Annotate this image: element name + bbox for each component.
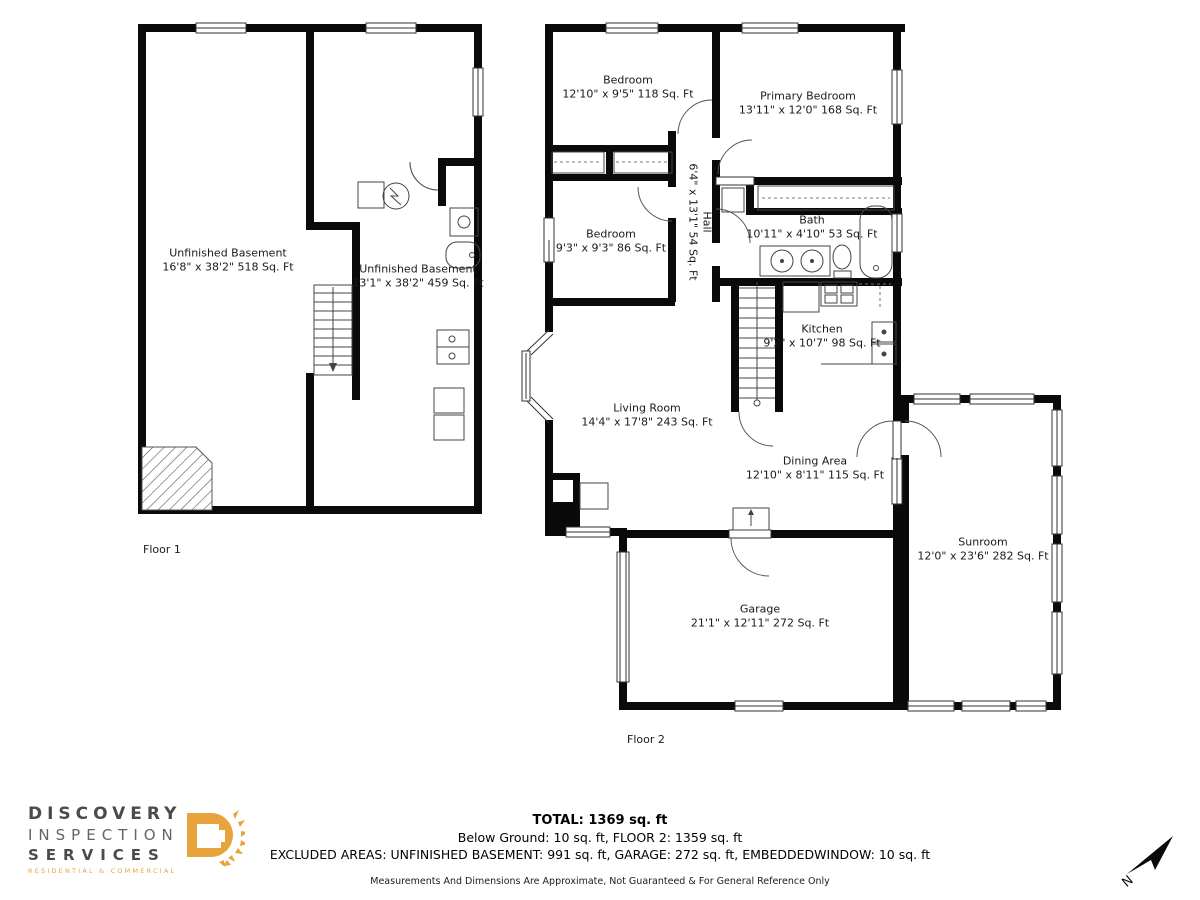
floor1-label: Floor 1 [143,543,181,556]
room-dims: 12'0" x 23'6" 282 Sq. Ft [917,550,1048,564]
room-dims: 14'4" x 17'8" 243 Sq. Ft [581,416,712,430]
room-dims: 13'1" x 38'2" 459 Sq. Ft [352,277,483,291]
room-label-basement-right: Unfinished Basement 13'1" x 38'2" 459 Sq… [352,263,483,292]
bay-window [527,330,553,423]
room-label-primary-bedroom: Primary Bedroom 13'11" x 12'0" 168 Sq. F… [739,90,877,119]
room-dims: 13'11" x 12'0" 168 Sq. Ft [739,104,877,118]
room-label-kitchen: Kitchen 9'2" x 10'7" 98 Sq. Ft [763,323,880,352]
room-label-basement-left: Unfinished Basement 16'8" x 38'2" 518 Sq… [162,247,293,276]
room-name: Unfinished Basement [352,263,483,277]
floorplan-drawing [0,0,1200,900]
fireplace-inner [553,480,573,502]
room-label-garage: Garage 21'1" x 12'11" 272 Sq. Ft [691,603,829,632]
room-name: Sunroom [917,536,1048,550]
room-label-bedroom-top: Bedroom 12'10" x 9'5" 118 Sq. Ft [562,74,693,103]
room-dims: 9'2" x 10'7" 98 Sq. Ft [763,337,880,351]
room-dims: 9'3" x 9'3" 86 Sq. Ft [556,242,666,256]
room-name: Unfinished Basement [162,247,293,261]
room-label-living-room: Living Room 14'4" x 17'8" 243 Sq. Ft [581,402,712,431]
compass-label: N [1119,873,1136,891]
room-name: Bedroom [556,228,666,242]
room-dims: 12'10" x 9'5" 118 Sq. Ft [562,88,693,102]
room-label-sunroom: Sunroom 12'0" x 23'6" 282 Sq. Ft [917,536,1048,565]
room-name: Hall [699,163,713,280]
room-name: Living Room [581,402,712,416]
room-dims: 6'4" x 13'1" 54 Sq. Ft [685,163,699,280]
floorplan-page: Unfinished Basement 16'8" x 38'2" 518 Sq… [0,0,1200,900]
room-dims: 21'1" x 12'11" 272 Sq. Ft [691,617,829,631]
floor1-utility-fixtures [434,330,469,440]
floor1-stairs [314,285,352,375]
room-name: Primary Bedroom [739,90,877,104]
room-dims: 10'11" x 4'10" 53 Sq. Ft [746,228,877,242]
room-name: Bath [746,214,877,228]
logo-tagline: RESIDENTIAL & COMMERCIAL [28,867,228,875]
floor1-laundry [358,182,409,209]
room-label-hall: Hall 6'4" x 13'1" 54 Sq. Ft [685,163,714,280]
room-dims: 12'10" x 8'11" 115 Sq. Ft [746,469,884,483]
room-dims: 16'8" x 38'2" 518 Sq. Ft [162,261,293,275]
room-name: Dining Area [746,455,884,469]
room-name: Kitchen [763,323,880,337]
compass-north-arrow: N [1115,828,1190,893]
room-label-bedroom-mid: Bedroom 9'3" x 9'3" 86 Sq. Ft [556,228,666,257]
room-name: Garage [691,603,829,617]
logo-sun-icon [183,806,245,868]
floor1-windows [196,23,483,116]
room-name: Bedroom [562,74,693,88]
room-label-bath: Bath 10'11" x 4'10" 53 Sq. Ft [746,214,877,243]
room-label-dining-area: Dining Area 12'10" x 8'11" 115 Sq. Ft [746,455,884,484]
summary-disclaimer: Measurements And Dimensions Are Approxim… [0,876,1200,887]
hearth [580,483,608,509]
floor1-hatched-area [142,447,212,510]
floor2-label: Floor 2 [627,733,665,746]
